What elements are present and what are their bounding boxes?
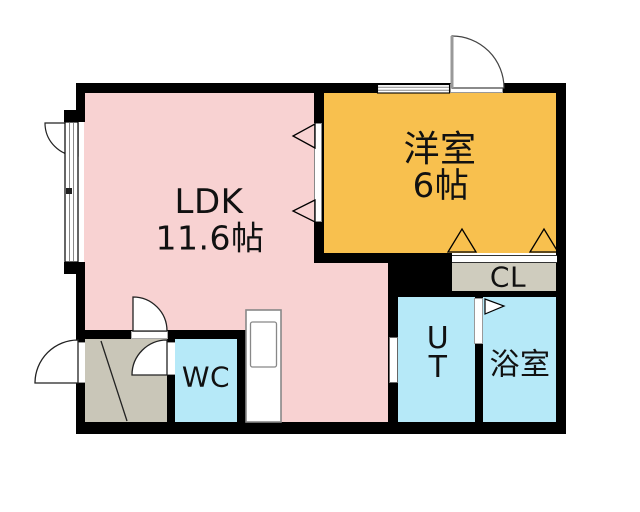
window-top-icon xyxy=(378,85,450,94)
door-swing-wc-icon xyxy=(132,340,167,375)
closet-door-arrow-icon xyxy=(448,229,476,252)
kitchen-unit-icon xyxy=(246,310,281,422)
ldk-area-label: 11.6帖 xyxy=(156,222,265,257)
door-swing-ldk-icon xyxy=(133,297,167,331)
floor-plan: LDK 11.6帖 洋室 6帖 CL WC UT 浴室 xyxy=(0,0,640,512)
bathroom-door-arrow-icon xyxy=(485,299,504,314)
closet-label: CL xyxy=(490,262,526,291)
ldk-label: LDK xyxy=(175,185,244,221)
window-left-icon xyxy=(65,122,78,262)
entrance-step-line xyxy=(101,341,127,421)
western-room-label: 洋室 xyxy=(403,131,476,169)
bathroom-label: 浴室 xyxy=(490,349,551,381)
sliding-door-arrow-icon xyxy=(293,124,315,148)
utility-label: UT xyxy=(426,324,450,382)
floor-plan-symbols xyxy=(0,0,640,512)
door-swing-western-icon xyxy=(452,36,504,88)
wc-label: WC xyxy=(182,362,230,391)
door-swing-front-icon xyxy=(35,340,78,383)
sliding-door-arrow-icon xyxy=(293,200,315,222)
closet-door-arrow-icon xyxy=(530,229,558,252)
western-room-area-label: 6帖 xyxy=(413,169,470,205)
